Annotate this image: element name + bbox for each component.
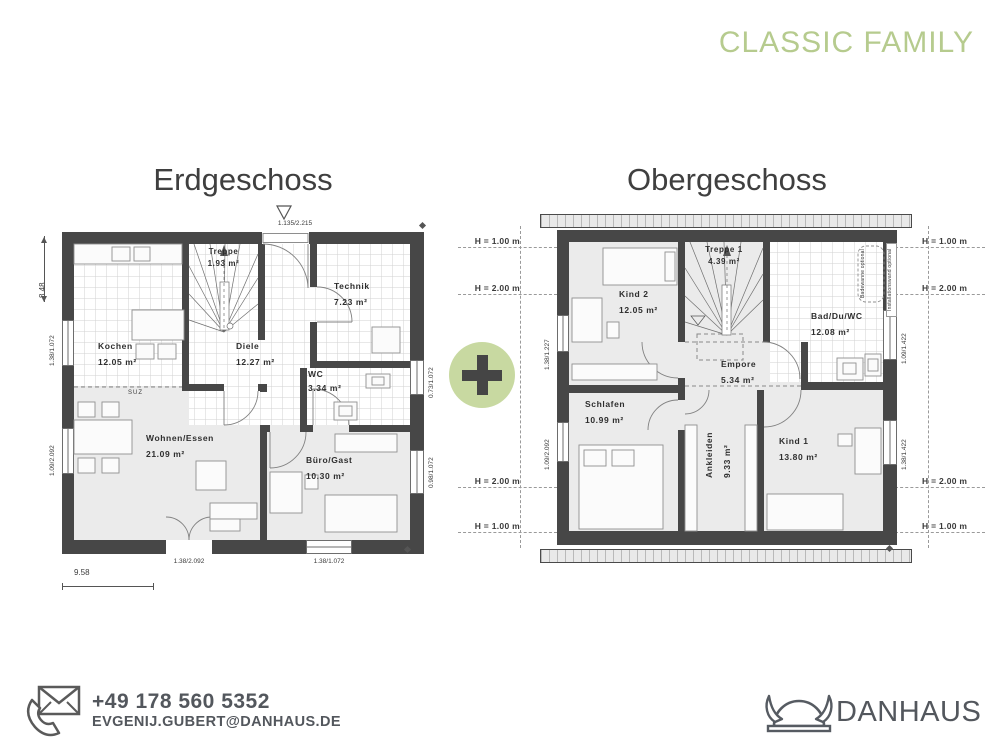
room-area: 12.05 m² bbox=[98, 354, 137, 370]
room-name: Treppe 1 bbox=[685, 244, 763, 256]
phone-envelope-icon bbox=[22, 684, 84, 740]
dim-left-top-window: 1.38/1.227 bbox=[544, 322, 551, 370]
room-area: 9.33 m² bbox=[719, 432, 735, 478]
height-line bbox=[458, 294, 557, 295]
room-label-kochen: Kochen 12.05 m² bbox=[98, 338, 137, 370]
room-label-diele: Diele 12.27 m² bbox=[236, 338, 275, 370]
room-name: Diele bbox=[236, 338, 275, 354]
installation-wall-note: Installationswand optional bbox=[886, 243, 897, 317]
height-label: H = 2.00 m bbox=[922, 283, 967, 293]
room-label-treppe1: Treppe 1 4.39 m² bbox=[685, 244, 763, 268]
room-label-wc: WC 3.34 m² bbox=[308, 368, 342, 395]
height-label: H = 1.00 m bbox=[462, 236, 520, 246]
height-line bbox=[458, 487, 557, 488]
room-name: WC bbox=[308, 368, 342, 382]
floorplan-erdgeschoss: Kochen 12.05 m² Treppe 1.93 m² Technik 7… bbox=[62, 232, 424, 554]
obergeschoss-title: Obergeschoss bbox=[577, 162, 877, 198]
erdgeschoss-title: Erdgeschoss bbox=[93, 162, 393, 198]
room-area: 13.80 m² bbox=[779, 449, 818, 465]
room-name: Büro/Gast bbox=[306, 452, 353, 468]
room-name: Bad/Du/WC bbox=[811, 308, 863, 324]
roof-eave-bottom bbox=[540, 549, 912, 563]
page: CLASSIC FAMILY Erdgeschoss Obergeschoss bbox=[0, 0, 1000, 750]
room-name: Schlafen bbox=[585, 396, 625, 412]
room-area: 1.93 m² bbox=[189, 258, 258, 270]
dim-arrow-down bbox=[41, 296, 47, 305]
room-area: 21.09 m² bbox=[146, 446, 214, 462]
contact-email: EVGENIJ.GUBERT@DANHAUS.DE bbox=[92, 714, 341, 730]
dim-width-total: 9.58 bbox=[74, 568, 90, 577]
height-label: H = 2.00 m bbox=[462, 283, 520, 293]
dim-width-tick-left bbox=[62, 583, 63, 590]
room-label-empore: Empore 5.34 m² bbox=[721, 356, 756, 388]
room-label-technik: Technik 7.23 m² bbox=[334, 278, 370, 310]
plus-bar-vertical bbox=[477, 355, 488, 395]
height-label: H = 2.00 m bbox=[462, 476, 520, 486]
dim-bottom-window: 1.38/1.072 bbox=[299, 558, 359, 565]
height-label: H = 1.00 m bbox=[922, 521, 967, 531]
room-area: 3.34 m² bbox=[308, 382, 342, 396]
room-area: 5.34 m² bbox=[721, 372, 756, 388]
series-title: CLASSIC FAMILY bbox=[719, 26, 974, 60]
room-name: Ankleiden bbox=[701, 432, 717, 478]
dim-width-line bbox=[62, 586, 154, 587]
floorplan-obergeschoss: Kind 2 12.05 m² Treppe 1 4.39 m² Bad/Du/… bbox=[557, 230, 897, 545]
dim-left-bottom-window: 1.09/2.092 bbox=[544, 422, 551, 470]
room-name: Kind 2 bbox=[619, 286, 658, 302]
room-label-bad-du-wc: Bad/Du/WC 12.08 m² bbox=[811, 308, 863, 340]
entrance-dimension: 1.135/2.215 bbox=[260, 220, 330, 227]
room-name: Empore bbox=[721, 356, 756, 372]
dim-width-tick-right bbox=[153, 583, 154, 590]
dim-left-bottom-window: 1.09/2.092 bbox=[49, 426, 56, 476]
room-area: 10.99 m² bbox=[585, 412, 625, 428]
height-line bbox=[895, 487, 985, 488]
height-line bbox=[895, 294, 985, 295]
room-area: 12.27 m² bbox=[236, 354, 275, 370]
height-line bbox=[895, 247, 985, 248]
room-label-treppe: Treppe 1.93 m² bbox=[189, 246, 258, 270]
room-area: 4.39 m² bbox=[685, 256, 763, 268]
roof-eave-top bbox=[540, 214, 912, 228]
room-label-wohnen-essen: Wohnen/Essen 21.09 m² bbox=[146, 430, 214, 462]
room-name: Kind 1 bbox=[779, 433, 818, 449]
plus-icon bbox=[449, 342, 515, 408]
roof-section-line-left bbox=[520, 226, 521, 548]
height-line bbox=[458, 532, 557, 533]
dim-right-bottom-window: 0.98/1.072 bbox=[428, 440, 435, 488]
suz-label: SUZ bbox=[128, 390, 143, 396]
viking-helmet-icon bbox=[762, 688, 834, 736]
room-name: Kochen bbox=[98, 338, 137, 354]
room-label-schlafen: Schlafen 10.99 m² bbox=[585, 396, 625, 428]
height-label: H = 2.00 m bbox=[922, 476, 967, 486]
room-area: 7.23 m² bbox=[334, 294, 370, 310]
dim-right-top-window: 1.09/1.422 bbox=[901, 316, 908, 364]
room-label-kind2: Kind 2 12.05 m² bbox=[619, 286, 658, 318]
room-area: 12.05 m² bbox=[619, 302, 658, 318]
height-line bbox=[895, 532, 985, 533]
entrance-direction-icon bbox=[277, 206, 291, 219]
room-name: Wohnen/Essen bbox=[146, 430, 214, 446]
bathtub-optional-note: Badewanne optional bbox=[860, 250, 882, 298]
dim-right-top-window: 0.73/1.072 bbox=[428, 350, 435, 398]
dim-arrow-line bbox=[44, 236, 45, 302]
room-area: 12.08 m² bbox=[811, 324, 863, 340]
dim-bottom-door: 1.38/2.092 bbox=[159, 558, 219, 565]
room-label-kind1: Kind 1 13.80 m² bbox=[779, 433, 818, 465]
room-label-buero-gast: Büro/Gast 10.30 m² bbox=[306, 452, 353, 484]
dim-arrow-up bbox=[41, 234, 47, 243]
room-label-ankleiden: Ankleiden 9.33 m² bbox=[701, 432, 735, 478]
height-line bbox=[458, 247, 557, 248]
roof-section-line-right bbox=[928, 226, 929, 548]
height-label: H = 1.00 m bbox=[462, 521, 520, 531]
room-name: Treppe bbox=[189, 246, 258, 258]
logo-wordmark: DANHAUS bbox=[836, 696, 981, 729]
dim-right-bottom-window: 1.38/1.422 bbox=[901, 422, 908, 470]
dim-height-total: 8.48 bbox=[38, 240, 47, 298]
dim-left-top-window: 1.38/1.072 bbox=[49, 318, 56, 366]
height-label: H = 1.00 m bbox=[922, 236, 967, 246]
contact-phone: +49 178 560 5352 bbox=[92, 690, 270, 714]
room-name: Technik bbox=[334, 278, 370, 294]
room-area: 10.30 m² bbox=[306, 468, 353, 484]
